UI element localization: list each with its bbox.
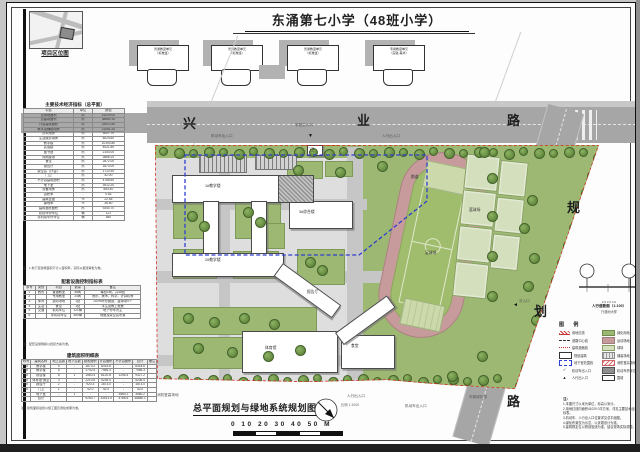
anno: 学校主入口 (295, 123, 313, 128)
table-row: 6#门卫1-42.042.0-42.0 (22, 388, 157, 393)
anno: 人行出入口 (382, 134, 400, 139)
legend-item: ✓机动车出入口 (559, 367, 599, 375)
table-row: 6非机动车位480辆地面及架空层布置 (24, 314, 141, 319)
road-label-lu2: 路 (507, 391, 520, 410)
plabel: 2#教学楼 (205, 258, 221, 263)
s-track-icon (602, 337, 615, 344)
col-header: 基底面积 (82, 360, 98, 365)
legend-label: 球场 (617, 345, 623, 350)
legend-title: 图 例 (559, 321, 636, 328)
notes-block: 注： 1.本图尺寸以米为单位，标高以米计。2.用地红线内面积41029.0平方米… (563, 397, 636, 430)
table3-note: 注：建筑面积最终以施工图及测绘成果为准。 (21, 407, 145, 411)
table-row: 5#报告厅2-920.31873.0-1873.0 (22, 383, 157, 388)
building-unit-diagram: 普通教室单元（标准班） (135, 45, 191, 89)
unit-stair-core (147, 69, 177, 86)
col-header: 地上层数 (51, 360, 67, 365)
legend-label: 绿化用地 (617, 330, 630, 335)
unit-connector (259, 65, 285, 79)
anno: 机动车出入口 (405, 404, 427, 409)
unit-body: 普通教室单元（标准班） (137, 45, 189, 71)
anno: 次入口 (519, 299, 530, 304)
table-row: -地下室-1--3560.23560.2 (22, 392, 157, 397)
main-entrance-marker: ▼ (308, 133, 313, 139)
s-redline-icon (559, 331, 570, 335)
table-row: 3#综合楼611560.48120.81206.49327.2 (22, 374, 157, 379)
s-rect-icon (559, 352, 572, 359)
legend-label: 道路中心线 (572, 338, 588, 343)
location-map-caption: 项目区位图 (27, 49, 83, 57)
plabel: 足球场 (425, 251, 436, 256)
legend-label: 建筑退缩线 (572, 345, 588, 350)
legend-label: 围墙 (617, 375, 623, 380)
plabel: 3#综合楼 (299, 210, 315, 215)
legend-item: 铺装场地 (602, 352, 636, 360)
drawing-title: 总平面规划与绿地系统规划图 (193, 401, 317, 416)
drawing-sheet: 东涌第七小学（48班小学） 项目区位图 普通教室单元（标准班）普通教室单元（标准… (6, 2, 636, 446)
s-rect-icon (602, 375, 615, 382)
plabel: 跑道 (411, 175, 419, 180)
note-line: 5.建筑物定位以规划验线为准，结合现场实际调整。 (563, 425, 636, 430)
road-label-gui: 规 (567, 197, 580, 216)
scale-note: 比例 1:1000 (341, 402, 359, 407)
legend-item: 围墙 (602, 374, 636, 382)
unit-stair-core (221, 69, 251, 86)
s-arrow-icon: ▲ (559, 376, 570, 381)
note-line: 2.用地红线内面积41029.0平方米，详见主要技术经济指标表。 (563, 407, 636, 416)
section-subcaption: 行道树大样 (575, 309, 636, 314)
legend-label: 机动车出入口 (572, 368, 591, 373)
anno: 消防登高场地 (157, 393, 179, 398)
anno: 市政绿化带 (469, 395, 487, 400)
east-entrance-marker: ◄ (513, 302, 518, 308)
table2-note: 注：配套设施规模以批复方案为准。 (23, 343, 147, 347)
table-row: 2#教学楼5-1742.57956.3-7956.3 (22, 369, 157, 374)
col-header: 地下层数 (67, 360, 83, 365)
title-rule (233, 33, 475, 34)
road-label-hua: 划 (534, 301, 547, 320)
unit-stair-core (297, 69, 327, 86)
plabel: 体育馆 (265, 346, 276, 351)
legend-item: 规划建筑 (559, 352, 599, 360)
unit-body: 专用教室单元（实验·美术） (373, 45, 425, 71)
notes-lines: 1.本图尺寸以米为单位，标高以米计。2.用地红线内面积41029.0平方米，详见… (563, 402, 636, 430)
legend-right-column: 绿化用地运动场地球场铺装场地消防登高场地机动车停车位围墙 (602, 329, 636, 382)
s-court-icon (602, 345, 615, 352)
legend-item: 机动车停车位 (602, 367, 636, 375)
legend-label: 规划建筑 (574, 353, 587, 358)
legend-label: 铺装场地 (617, 353, 630, 358)
table-row: 非机动车停车位辆480 (24, 216, 125, 221)
legend-item: 道路中心线 (559, 337, 599, 345)
photo-bottom-edge (0, 444, 640, 452)
table-row: 4#体育馆·食堂3-2210.65236.4-5236.4 (22, 378, 157, 383)
legend-label: 地下室范围线 (574, 360, 593, 365)
legend-item: 球场 (602, 344, 636, 352)
legend-label: 机动车停车位 (617, 368, 636, 373)
photo-right-edge (636, 0, 640, 452)
plabel: 篮球场 (469, 208, 480, 213)
s-dots-icon (559, 347, 570, 348)
s-grid-icon (602, 352, 615, 359)
road-label-ye: 业 (357, 110, 370, 129)
site-red-line (155, 145, 599, 389)
building-unit-diagram: 专用教室单元（实验·美术） (371, 45, 427, 89)
legend-item: 运动场地 (602, 337, 636, 345)
anno: 机动车出入口 (211, 134, 233, 139)
legend-item: 用地红线 (559, 329, 599, 337)
table-row: 1#教学楼5-1873.28315.6-8315.6 (22, 364, 157, 369)
drawing-sheet-photo: 东涌第七小学（48班小学） 项目区位图 普通教室单元（标准班）普通教室单元（标准… (0, 0, 640, 452)
legend: 图 例 用地红线道路中心线建筑退缩线规划建筑地下室范围线✓机动车出入口▲人行出入… (559, 321, 636, 382)
legend-label: 消防登高场地 (617, 360, 636, 365)
plabel: 1#教学楼 (205, 184, 221, 189)
s-green-icon (602, 330, 615, 337)
building-unit-diagram: 普通教室单元（标准班） (285, 45, 341, 89)
north-arrow-icon (313, 397, 339, 423)
s-check-icon: ✓ (559, 368, 570, 373)
s-rectdash-icon (559, 360, 572, 367)
legend-label: 人行出入口 (572, 375, 588, 380)
building-areas-table: 栋号建筑名称地上层数地下层数基底面积计容面积不计容面积合计备注1#教学楼5-18… (21, 359, 157, 402)
table1-note: 注：1.地下室建筑面积不计入容积率，实际以报建审批为准。 (23, 267, 147, 271)
table-row: 合计9250.733913.54766.638680.1 (22, 397, 157, 402)
section-drawing (575, 261, 636, 295)
unit-stair-core (383, 69, 413, 86)
locmap-site-parcel (59, 27, 75, 40)
underground-garage-line (185, 155, 427, 255)
plabel: 报告厅 (307, 290, 318, 295)
s-bolddash-icon (559, 340, 570, 341)
col-header: 不计容面积 (114, 360, 133, 365)
plabel: 食堂 (351, 344, 359, 349)
anno: 人行出入口 (347, 394, 365, 399)
unit-body: 普通教室单元（标准班） (287, 45, 339, 71)
road-label-xing: 兴 (183, 113, 196, 132)
location-map (29, 11, 83, 49)
sidewalk-section-detail: 2.0 2.0 4.0 人行道断面（1:100） 行道树大样 (575, 261, 636, 309)
s-hatch-icon (602, 360, 615, 367)
legend-item: 建筑退缩线 (559, 344, 599, 352)
economic-indicators-table: 项目单位数值总用地面积㎡41029.00总建筑面积㎡38680.10计容建筑面积… (23, 108, 125, 221)
legend-label: 运动场地 (617, 338, 630, 343)
col-header: 计容面积 (98, 360, 114, 365)
unit-body: 普通教室单元（标准班） (211, 45, 263, 71)
legend-item: 绿化用地 (602, 329, 636, 337)
plabel: 门卫 (307, 148, 315, 153)
scale-bar-digits: 0 10 20 30 40 50 M (231, 421, 332, 428)
legend-item: 地下室范围线 (559, 359, 599, 367)
legend-label: 用地红线 (572, 330, 585, 335)
page-title: 东涌第七小学（48班小学） (245, 10, 469, 32)
s-dark-icon (602, 367, 615, 374)
facilities-table: 序号类别项目数量备注1教育普通教室48间每班1间，共48班2专用教室24间音乐、… (23, 285, 141, 319)
legend-item: 消防登高场地 (602, 359, 636, 367)
legend-item: ▲人行出入口 (559, 374, 599, 382)
road-label-lu: 路 (507, 110, 520, 129)
legend-left-column: 用地红线道路中心线建筑退缩线规划建筑地下室范围线✓机动车出入口▲人行出入口 (559, 329, 599, 382)
